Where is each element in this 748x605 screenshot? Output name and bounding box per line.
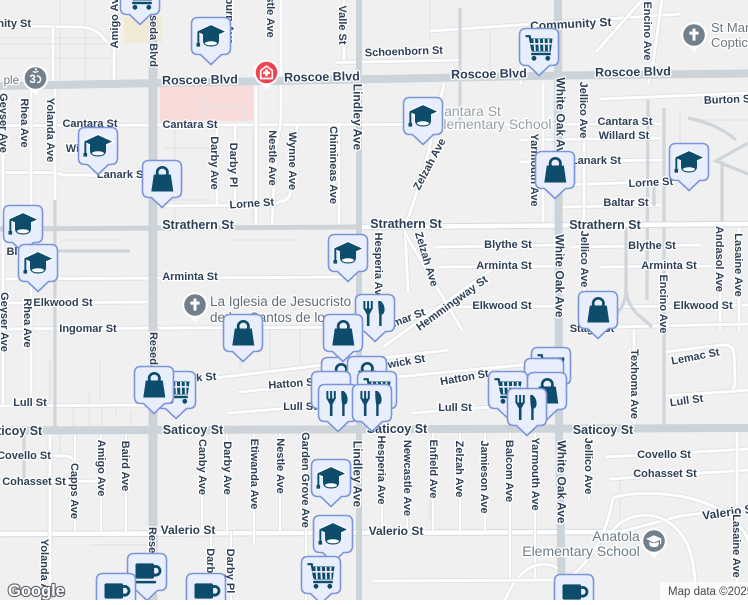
svg-text:Saticoy St: Saticoy St	[573, 423, 634, 437]
svg-text:Saticoy St: Saticoy St	[163, 423, 224, 437]
svg-text:Blythe St: Blythe St	[628, 240, 676, 252]
svg-text:Etiwanda Ave: Etiwanda Ave	[248, 439, 260, 510]
svg-text:Google: Google	[8, 582, 65, 600]
svg-text:Roscoe Blvd: Roscoe Blvd	[284, 69, 360, 84]
svg-text:Elkwood St: Elkwood St	[673, 300, 733, 312]
svg-text:Andasol Ave: Andasol Ave	[713, 226, 725, 292]
svg-text:3: 3	[29, 74, 35, 86]
svg-text:Wynne Ave: Wynne Ave	[286, 132, 298, 190]
svg-text:Nestle Ave: Nestle Ave	[266, 130, 278, 185]
svg-text:Arminta St: Arminta St	[476, 260, 532, 272]
svg-text:Texhoma Ave: Texhoma Ave	[628, 349, 640, 419]
svg-text:Lanark St: Lanark St	[571, 155, 621, 167]
svg-text:Darby Pl: Darby Pl	[227, 143, 239, 188]
svg-text:Hesperia Ave: Hesperia Ave	[375, 436, 387, 505]
svg-text:Covello St: Covello St	[637, 449, 691, 461]
svg-text:Yolanda Ave: Yolanda Ave	[44, 98, 56, 162]
svg-text:Hesperia Ave: Hesperia Ave	[372, 233, 384, 302]
svg-text:Anatola: Anatola	[592, 528, 640, 544]
svg-text:Valle St: Valle St	[336, 5, 348, 44]
svg-text:stle Ave: stle Ave	[264, 0, 276, 38]
svg-text:Enfield Ave: Enfield Ave	[427, 439, 439, 498]
svg-text:La Iglesia de Jesucristo: La Iglesia de Jesucristo	[210, 294, 351, 309]
svg-text:Roscoe Blvd: Roscoe Blvd	[162, 72, 238, 87]
svg-text:Valerio St: Valerio St	[161, 523, 216, 537]
svg-text:Covello St: Covello St	[0, 450, 51, 462]
svg-text:Jellico Ave: Jellico Ave	[577, 82, 589, 139]
svg-text:Encino Ave: Encino Ave	[657, 274, 669, 333]
svg-text:Lanark St: Lanark St	[97, 169, 147, 181]
svg-text:Willard St: Willard St	[599, 130, 650, 142]
svg-text:Elementary School: Elementary School	[434, 116, 552, 132]
svg-text:Zelzah Ave: Zelzah Ave	[453, 441, 465, 498]
svg-text:Strathern St: Strathern St	[370, 217, 442, 231]
svg-text:Blythe St: Blythe St	[484, 239, 532, 251]
svg-text:Darby Ave: Darby Ave	[221, 441, 233, 495]
svg-text:Newcastle Ave: Newcastle Ave	[401, 440, 413, 516]
svg-text:Lorne St: Lorne St	[628, 176, 674, 190]
svg-text:Geyser Ave: Geyser Ave	[0, 292, 10, 352]
svg-text:Amigo Ave: Amigo Ave	[95, 440, 107, 497]
svg-text:Rhea Ave: Rhea Ave	[21, 298, 33, 347]
svg-text:Lull St: Lull St	[13, 397, 47, 409]
svg-text:Elkwood St: Elkwood St	[33, 297, 93, 309]
svg-text:Cantara St: Cantara St	[597, 116, 652, 128]
svg-text:Darby Ave: Darby Ave	[208, 136, 220, 190]
svg-text:Lasaine Ave: Lasaine Ave	[730, 514, 742, 577]
svg-text:St Mary: St Mary	[711, 20, 748, 35]
svg-text:White Oak Ave: White Oak Ave	[554, 77, 568, 160]
svg-text:Arminta St: Arminta St	[641, 260, 697, 272]
svg-text:Nestle Ave: Nestle Ave	[274, 438, 286, 493]
svg-text:Rhea Ave: Rhea Ave	[18, 98, 30, 147]
svg-text:Encino Ave: Encino Ave	[641, 1, 653, 60]
svg-text:Baird Ave: Baird Ave	[119, 441, 131, 492]
svg-text:Lindley Ave: Lindley Ave	[351, 84, 365, 151]
svg-text:Valerio St: Valerio St	[369, 524, 424, 538]
svg-text:Elementary School: Elementary School	[522, 543, 640, 559]
svg-text:Coptic Or: Coptic Or	[711, 35, 748, 50]
svg-text:Roscoe Blvd: Roscoe Blvd	[451, 66, 527, 81]
svg-text:Capps Ave: Capps Ave	[68, 463, 80, 519]
svg-text:Map data ©2025: Map data ©2025	[668, 586, 748, 598]
svg-text:Chimineas Ave: Chimineas Ave	[327, 126, 339, 204]
svg-text:Canby Ave: Canby Ave	[196, 439, 208, 495]
svg-text:Cantara St: Cantara St	[162, 119, 217, 131]
svg-text:ple: ple	[4, 75, 19, 87]
svg-text:White Oak Ave: White Oak Ave	[555, 440, 569, 523]
svg-text:Elkwood St: Elkwood St	[472, 300, 532, 312]
svg-text:Roscoe Blvd: Roscoe Blvd	[595, 64, 671, 79]
svg-text:Baltar St: Baltar St	[603, 197, 649, 209]
svg-text:Jamieson Ave: Jamieson Ave	[478, 440, 490, 513]
svg-text:Cohasset St: Cohasset St	[633, 468, 697, 480]
svg-text:Jellico Ave: Jellico Ave	[578, 231, 590, 288]
svg-text:Ingomar St: Ingomar St	[59, 323, 117, 335]
svg-text:Cohasset St: Cohasset St	[2, 476, 66, 488]
svg-text:Lull St: Lull St	[438, 402, 472, 414]
svg-text:Amigo Ave: Amigo Ave	[109, 0, 121, 48]
svg-text:Lindley Ave: Lindley Ave	[351, 441, 365, 508]
svg-text:White Oak Ave: White Oak Ave	[553, 234, 567, 317]
svg-text:Strathern St: Strathern St	[162, 218, 234, 232]
svg-text:nity St: nity St	[0, 18, 31, 30]
svg-text:Garden Grove Ave: Garden Grove Ave	[299, 432, 311, 528]
svg-text:Burton St: Burton St	[704, 93, 748, 107]
svg-text:Arminta St: Arminta St	[162, 271, 218, 283]
svg-text:Yarmouth Ave: Yarmouth Ave	[529, 437, 541, 510]
svg-text:Geyser Ave: Geyser Ave	[0, 93, 9, 153]
svg-text:Balcom Ave: Balcom Ave	[503, 440, 515, 502]
svg-text:Lasaine Ave: Lasaine Ave	[732, 233, 744, 296]
svg-text:Saticoy St: Saticoy St	[0, 424, 43, 438]
svg-text:Jellico Ave: Jellico Ave	[582, 438, 594, 495]
